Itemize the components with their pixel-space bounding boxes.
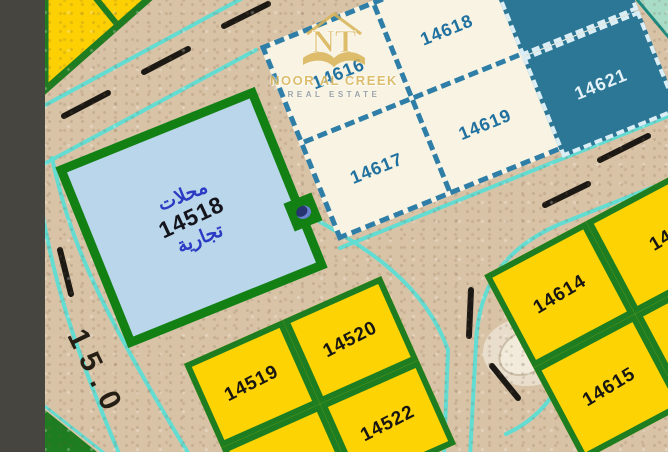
plot-map: 14616 14618 14617 14619 14621 محلات 1451… — [0, 0, 668, 452]
marker-dot — [294, 203, 313, 221]
plot-number-14522: 14522 — [357, 401, 419, 447]
logo-emblem: NT — [299, 10, 369, 68]
watermark-logo: NT NOOR AL CREEK REAL ESTATE — [264, 10, 404, 99]
logo-tagline: REAL ESTATE — [264, 90, 404, 99]
plot-number-14621: 14621 — [571, 64, 630, 104]
plot-number-14615: 14615 — [578, 363, 639, 412]
plot-number-14519: 14519 — [221, 361, 283, 407]
plot-number-14614: 14614 — [529, 270, 590, 319]
plot-number-partial: 14 — [646, 225, 668, 256]
logo-name: NOOR AL CREEK — [264, 73, 404, 88]
map-edge-strip — [0, 0, 45, 452]
plot-number-14520: 14520 — [320, 317, 382, 363]
